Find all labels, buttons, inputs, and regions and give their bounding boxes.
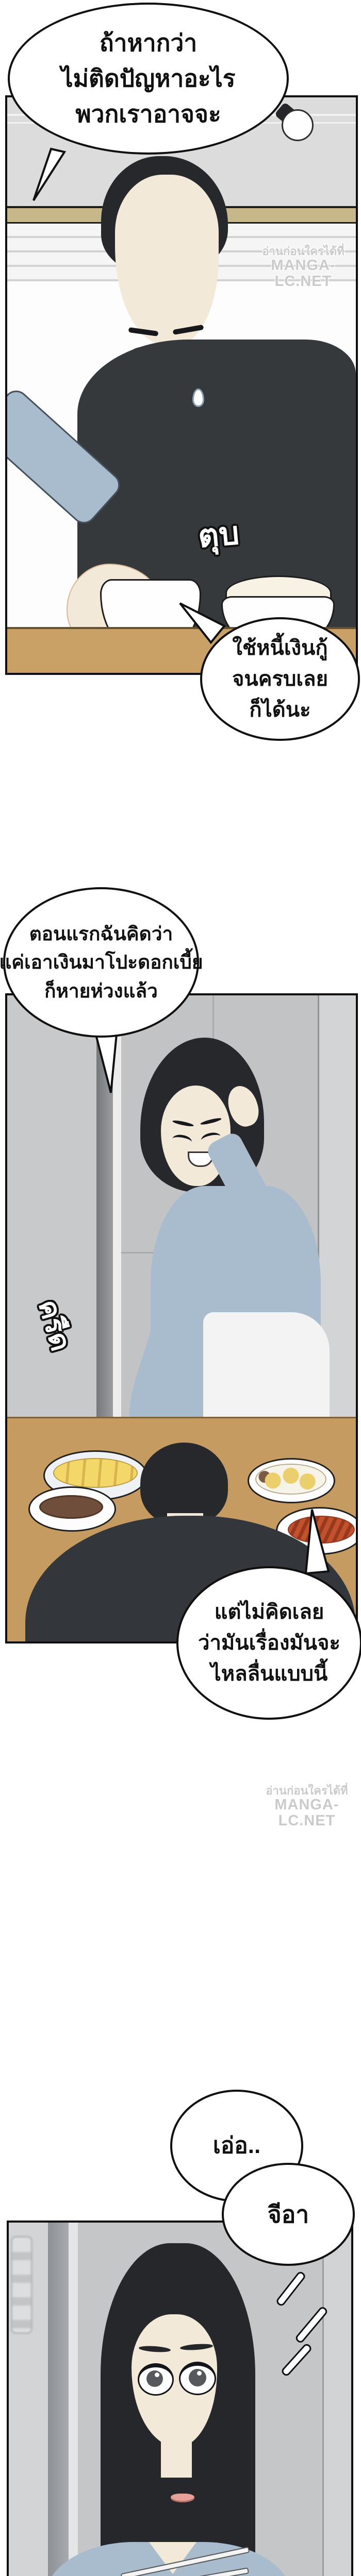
fridge-handle-column bbox=[48, 2223, 69, 2576]
eye-large bbox=[138, 2363, 174, 2396]
side-dish-food bbox=[39, 1495, 103, 1519]
speech-bubble-repay-loan: ใช้หนี้เงินกู้ จนครบเลย ก็ได้นะ bbox=[200, 617, 360, 741]
bubble-tail bbox=[302, 1509, 331, 1577]
son-head-back bbox=[140, 1443, 228, 1525]
site-watermark: อ่านก่อนใครได้ที่ MANGA-LC.NET bbox=[249, 245, 357, 290]
eyebrow bbox=[128, 327, 159, 336]
lamp-bulb bbox=[282, 109, 314, 141]
bowl-potatoes bbox=[248, 1458, 335, 1503]
bubble-tail bbox=[28, 147, 70, 204]
fridge-edge-light bbox=[69, 2223, 78, 2576]
lips-smile bbox=[171, 2494, 194, 2502]
wall-right-column bbox=[322, 2223, 351, 2576]
watermark-thai-line: อ่านก่อนใครได้ที่ bbox=[249, 245, 357, 258]
emphasis-dash bbox=[275, 2270, 306, 2308]
watermark-site-name: MANGA-LC.NET bbox=[253, 1797, 361, 1829]
eye-closed bbox=[171, 1133, 192, 1147]
eyebrow bbox=[200, 1117, 222, 1126]
sweat-drop bbox=[192, 388, 204, 407]
egg-roll-slices bbox=[53, 1458, 138, 1488]
potato-balls bbox=[255, 1464, 326, 1495]
speech-bubble-if-no-problem: ถ้าหากว่า ไม่ติดปัญหาอะไร พวกเราอาจจะ bbox=[8, 3, 289, 155]
fridge-control-panel bbox=[11, 2236, 32, 2334]
bubble-tail bbox=[90, 1028, 121, 1096]
man-face bbox=[115, 175, 219, 345]
webtoon-page: ตุบ ครืด bbox=[0, 0, 361, 2576]
site-watermark: อ่านก่อนใครได้ที่ MANGA-LC.NET bbox=[253, 1785, 361, 1829]
eyebrow bbox=[172, 1120, 194, 1128]
sfx-thud: ตุบ bbox=[196, 508, 241, 562]
eyebrow bbox=[173, 325, 204, 335]
speech-bubble-never-thought: แต่ไม่คิดเลย ว่ามันเรื่องมันจะ ไหลลื่นแบ… bbox=[176, 1566, 361, 1720]
eyebrow bbox=[180, 2343, 214, 2351]
panel-3-jia-smiling bbox=[7, 2221, 353, 2576]
watermark-thai-line: อ่านก่อนใครได้ที่ bbox=[253, 1785, 361, 1797]
plate-side-dish bbox=[28, 1486, 116, 1532]
eyebrow bbox=[139, 2345, 171, 2353]
emphasis-dash bbox=[280, 2343, 313, 2378]
watermark-site-name: MANGA-LC.NET bbox=[249, 258, 357, 290]
eye-large bbox=[179, 2362, 216, 2395]
jia-neck bbox=[161, 2442, 192, 2478]
speech-bubble-at-first: ตอนแรกฉันคิดว่า แค่เอาเงินมาโปะดอกเบี้ย … bbox=[3, 887, 199, 1038]
